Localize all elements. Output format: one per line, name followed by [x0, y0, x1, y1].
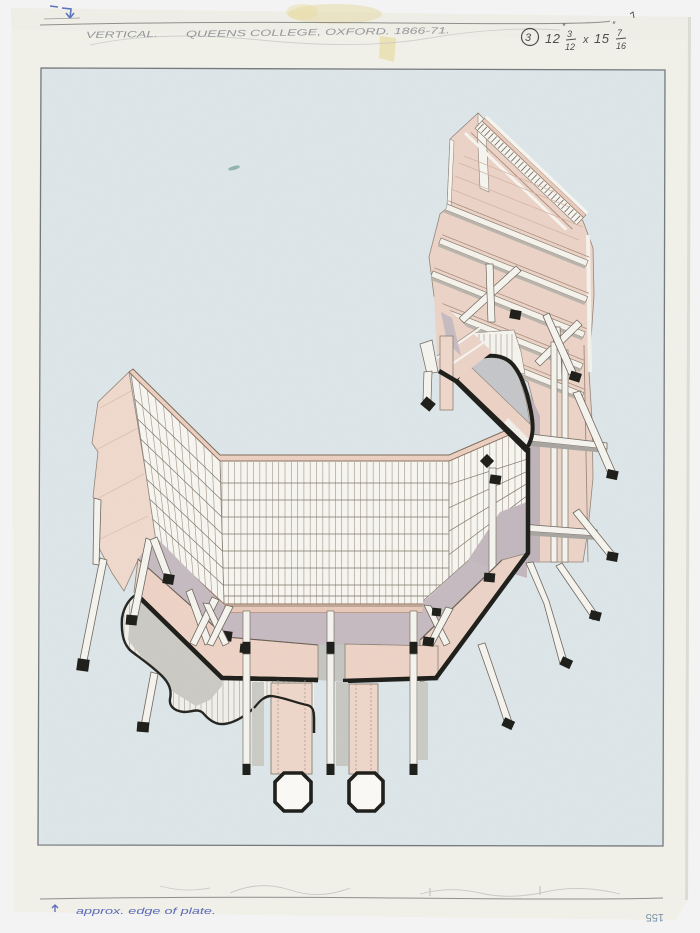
svg-text:3: 3 — [525, 32, 532, 44]
svg-text:16: 16 — [616, 41, 626, 51]
svg-text:155: 155 — [646, 911, 664, 923]
svg-text:x: x — [582, 34, 589, 46]
svg-text:3: 3 — [567, 29, 572, 39]
svg-text:12: 12 — [565, 42, 575, 52]
svg-text:12: 12 — [545, 31, 561, 46]
svg-text:VERTICAL.: VERTICAL. — [86, 29, 158, 40]
svg-text:approx. edge of plate.: approx. edge of plate. — [76, 906, 216, 916]
svg-text:15: 15 — [594, 31, 610, 46]
